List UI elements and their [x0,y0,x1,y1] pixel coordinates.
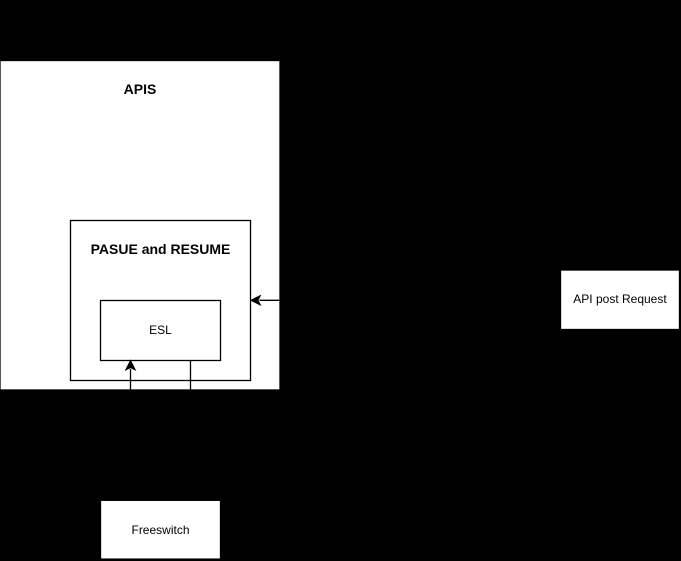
svg-text:APIS: APIS [124,81,157,97]
svg-text:Freeswitch: Freeswitch [131,523,189,537]
svg-text:PASUE and RESUME: PASUE and RESUME [91,241,231,257]
svg-text:API post Request: API post Request [573,292,667,306]
svg-text:ESL: ESL [149,323,172,337]
